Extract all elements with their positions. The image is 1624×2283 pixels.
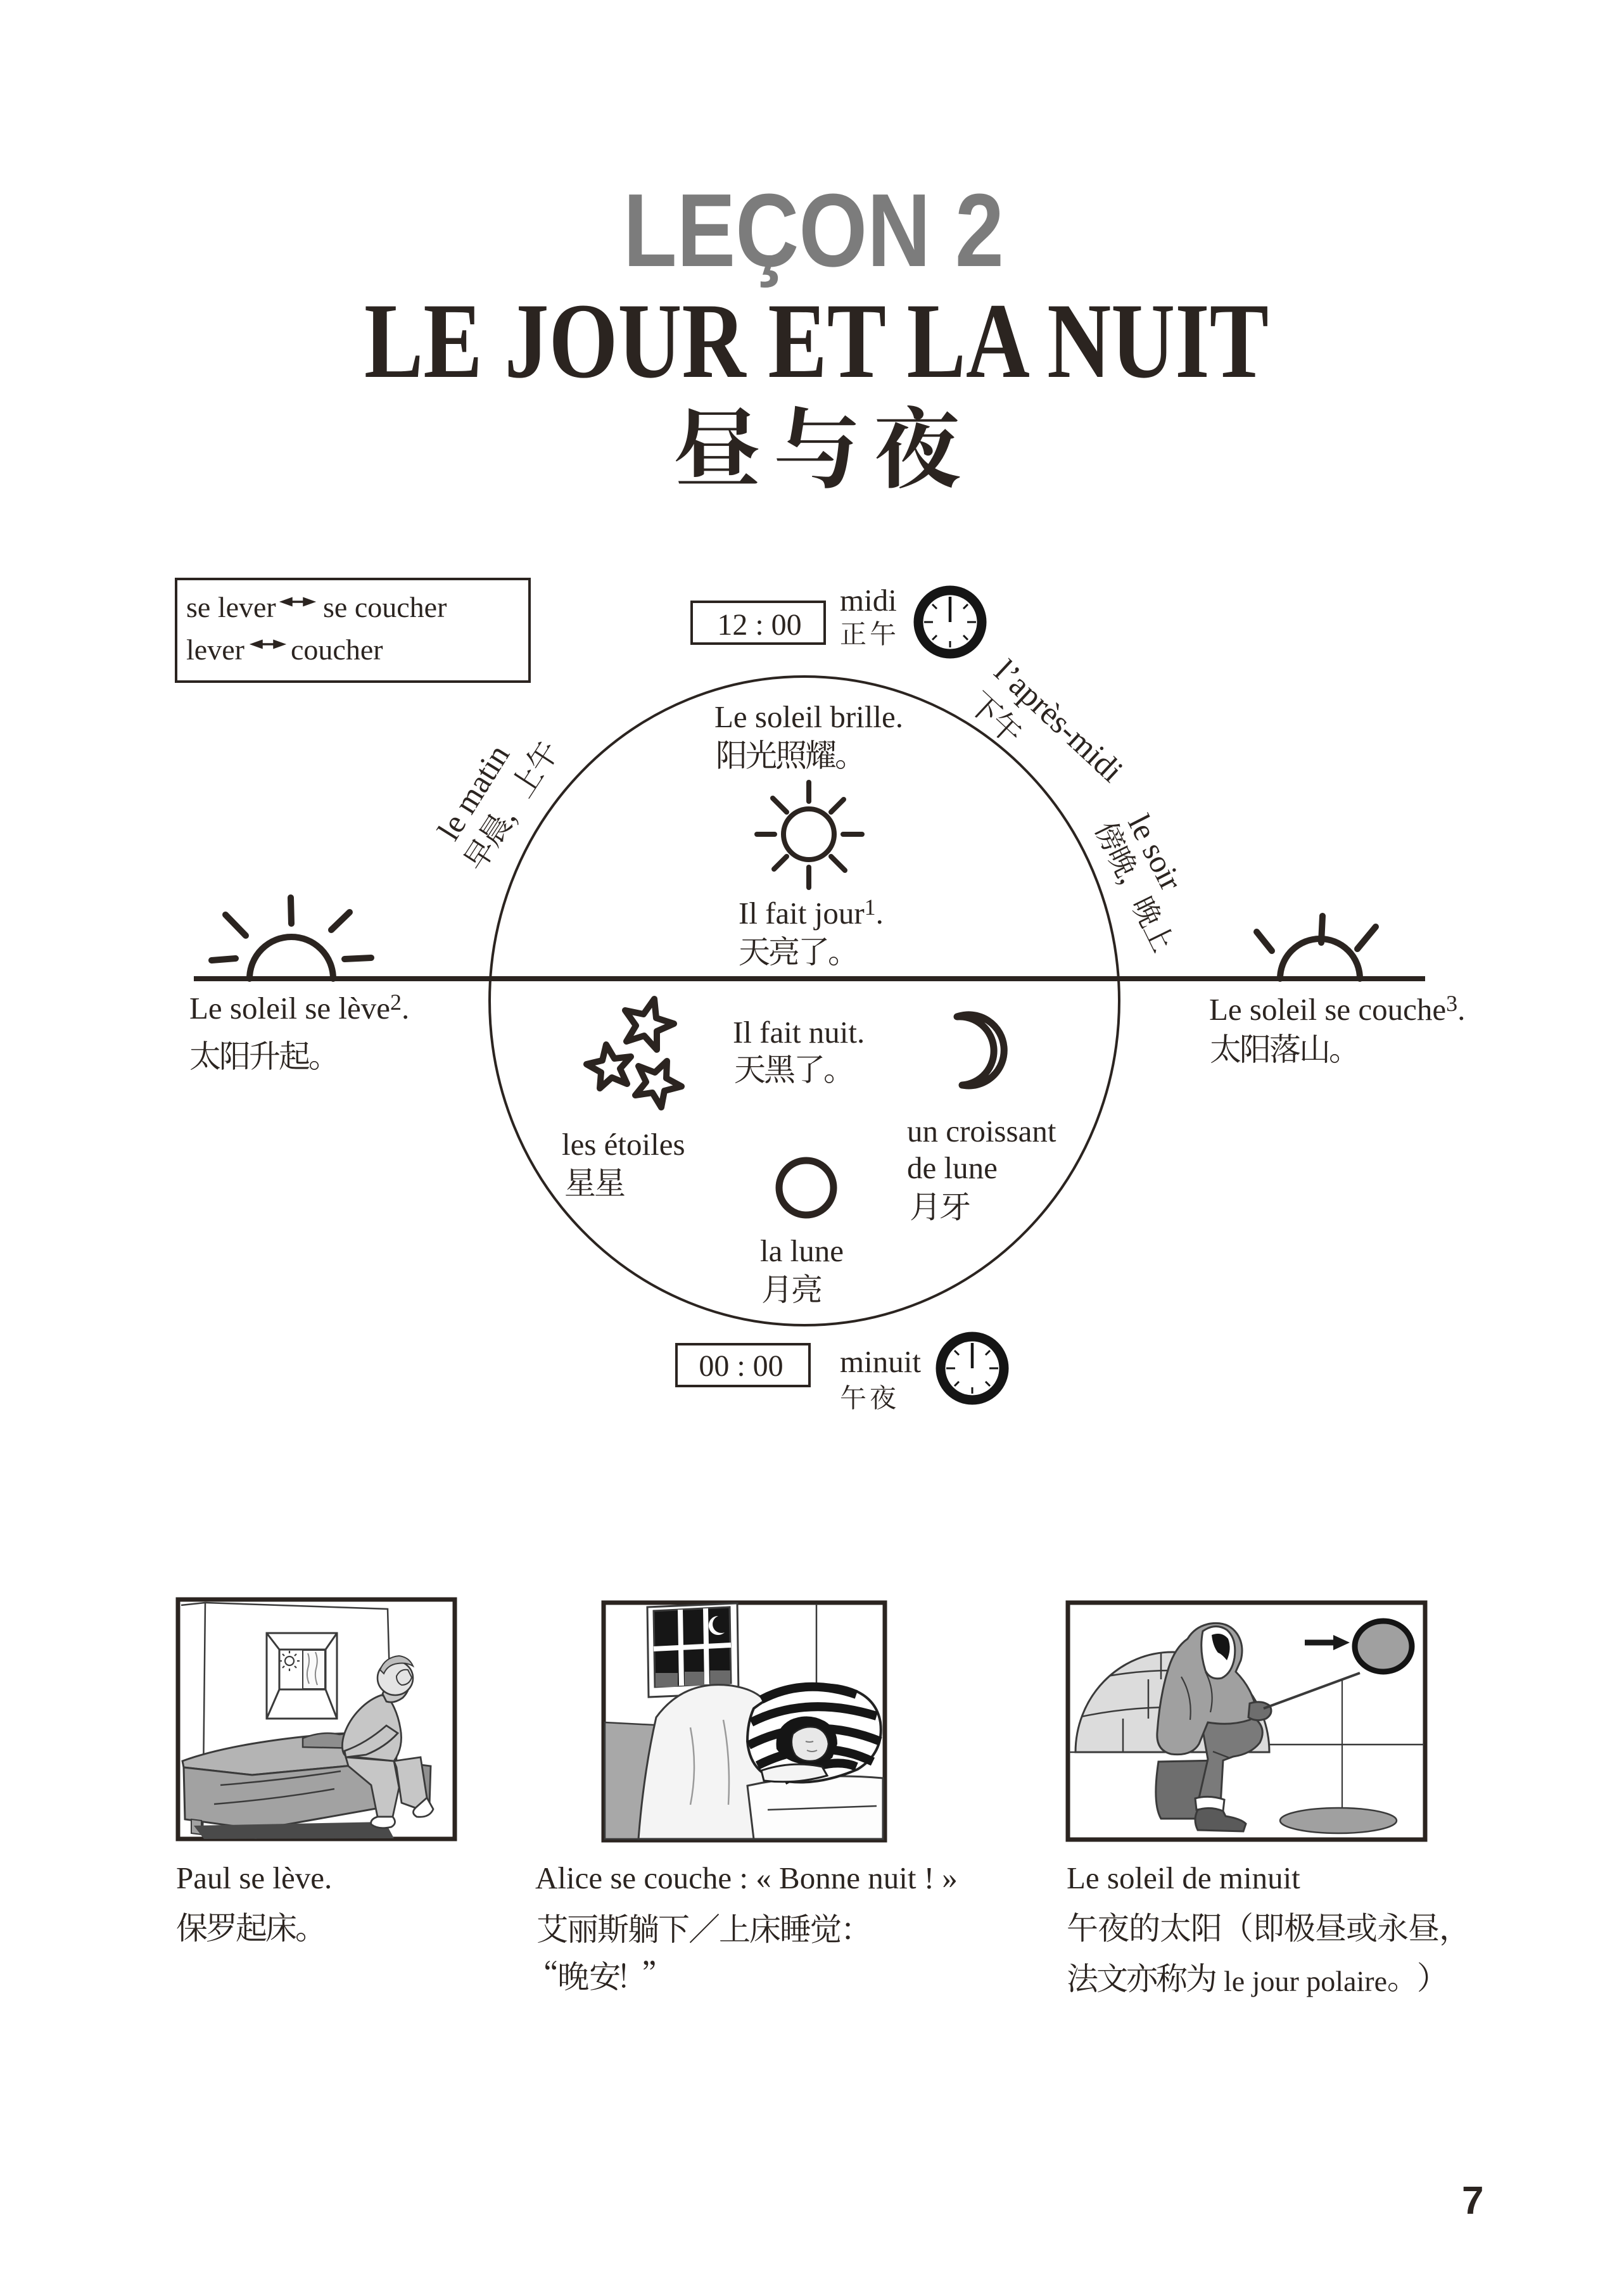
- svg-text:de lune: de lune: [907, 1150, 998, 1185]
- svg-text:LEÇON 2: LEÇON 2: [623, 172, 1004, 288]
- svg-text:12 : 00: 12 : 00: [717, 608, 801, 642]
- svg-text:se lever: se lever: [186, 591, 276, 623]
- svg-text:midi: midi: [840, 583, 897, 618]
- svg-text:00 : 00: 00 : 00: [699, 1349, 783, 1383]
- svg-text:un croissant: un croissant: [907, 1114, 1056, 1148]
- svg-text:la lune: la lune: [760, 1233, 844, 1268]
- svg-text:les étoiles: les étoiles: [562, 1127, 685, 1162]
- svg-text:lever: lever: [186, 633, 244, 666]
- svg-text:Il fait nuit.: Il fait nuit.: [733, 1015, 865, 1050]
- svg-text:Le soleil de minuit: Le soleil de minuit: [1067, 1860, 1300, 1895]
- svg-text:Le soleil se couche3.: Le soleil se couche3.: [1209, 991, 1465, 1027]
- svg-text:Paul se lève.: Paul se lève.: [176, 1860, 332, 1895]
- svg-text:7: 7: [1462, 2179, 1483, 2223]
- svg-text:Le soleil brille.: Le soleil brille.: [714, 699, 903, 734]
- svg-text:le jour polaire: le jour polaire: [1224, 1965, 1387, 1997]
- svg-text:Le soleil se lève2.: Le soleil se lève2.: [189, 989, 409, 1026]
- svg-text:minuit: minuit: [840, 1344, 921, 1379]
- svg-text:Alice se couche : « Bonne nuit: Alice se couche : « Bonne nuit ! »: [535, 1860, 958, 1895]
- svg-text:LE JOUR ET LA NUIT: LE JOUR ET LA NUIT: [364, 281, 1269, 400]
- svg-text:Il fait jour1.: Il fait jour1.: [739, 894, 884, 931]
- svg-text:coucher: coucher: [291, 633, 383, 666]
- svg-text:se coucher: se coucher: [323, 591, 447, 623]
